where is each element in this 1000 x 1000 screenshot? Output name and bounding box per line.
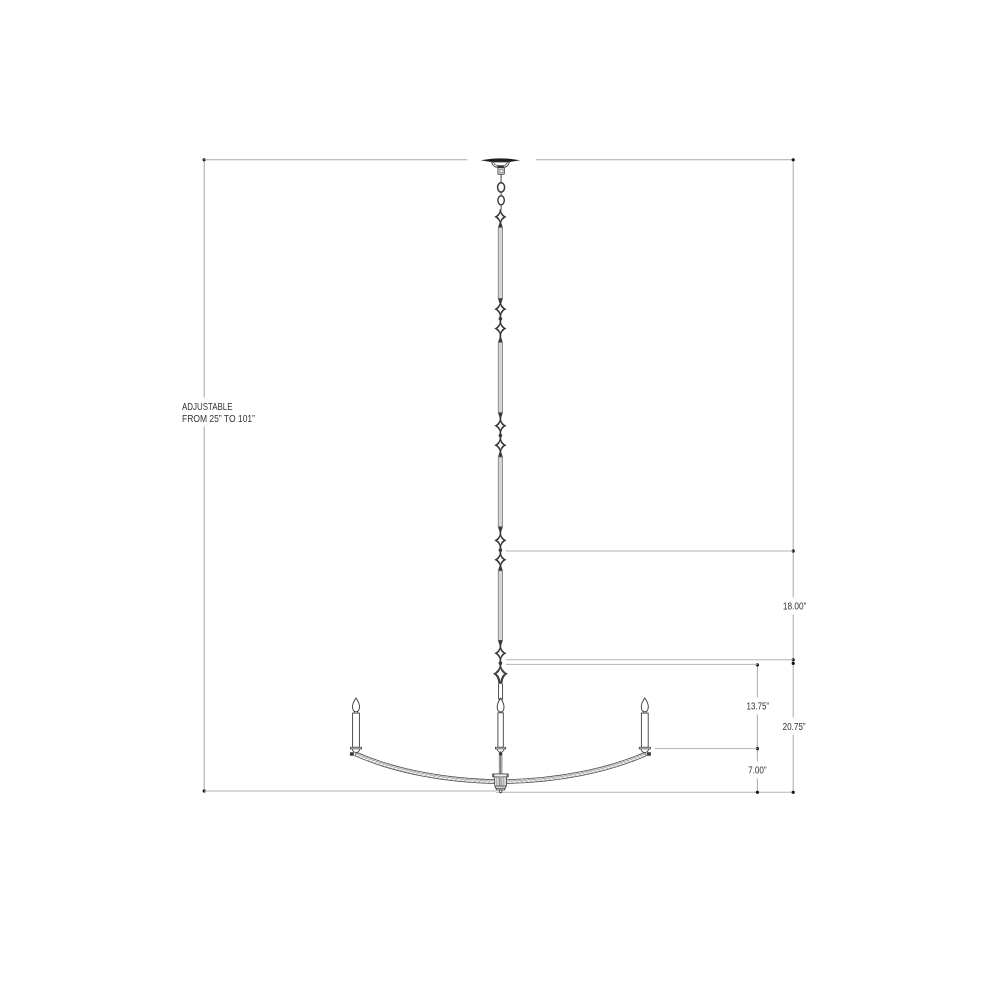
svg-text:ADJUSTABLE: ADJUSTABLE [182,402,233,413]
svg-text:FROM 25” TO 101”: FROM 25” TO 101” [182,414,255,425]
svg-text:20.75”: 20.75” [783,722,806,733]
svg-text:7.00”: 7.00” [748,765,767,776]
svg-text:18.00”: 18.00” [783,601,807,612]
svg-text:13.75”: 13.75” [747,702,770,713]
